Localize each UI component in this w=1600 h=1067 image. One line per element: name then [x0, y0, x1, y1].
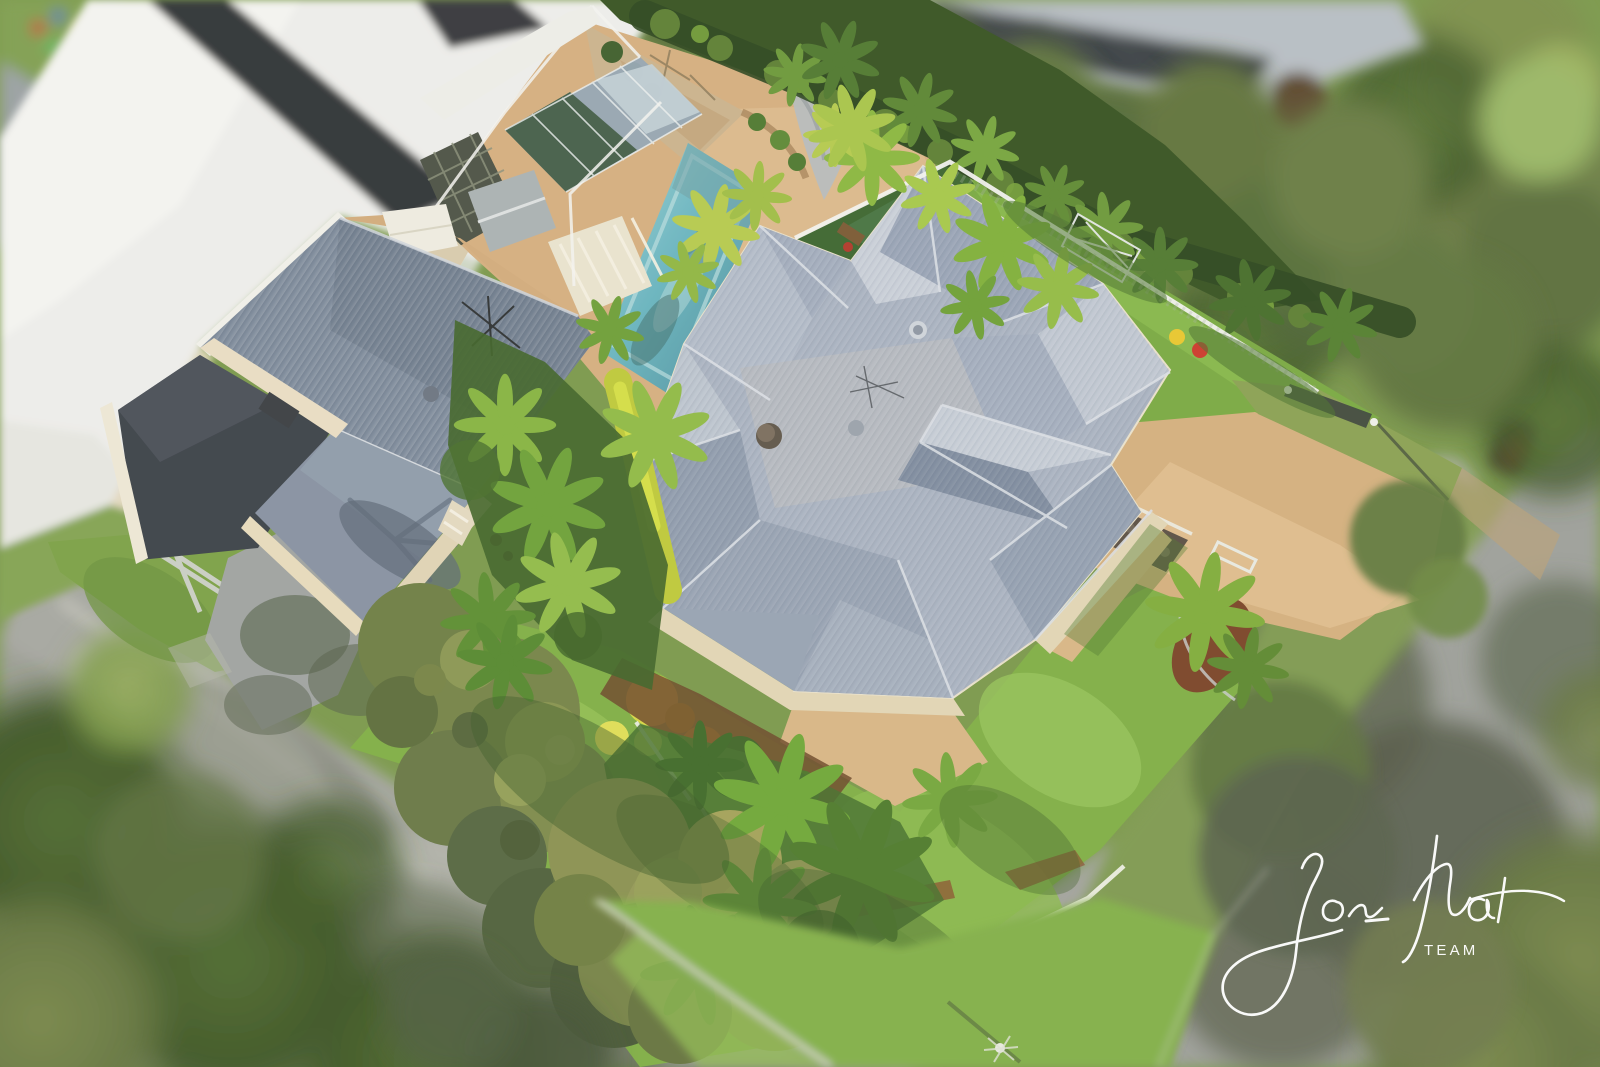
svg-text:TEAM: TEAM — [1424, 942, 1478, 959]
